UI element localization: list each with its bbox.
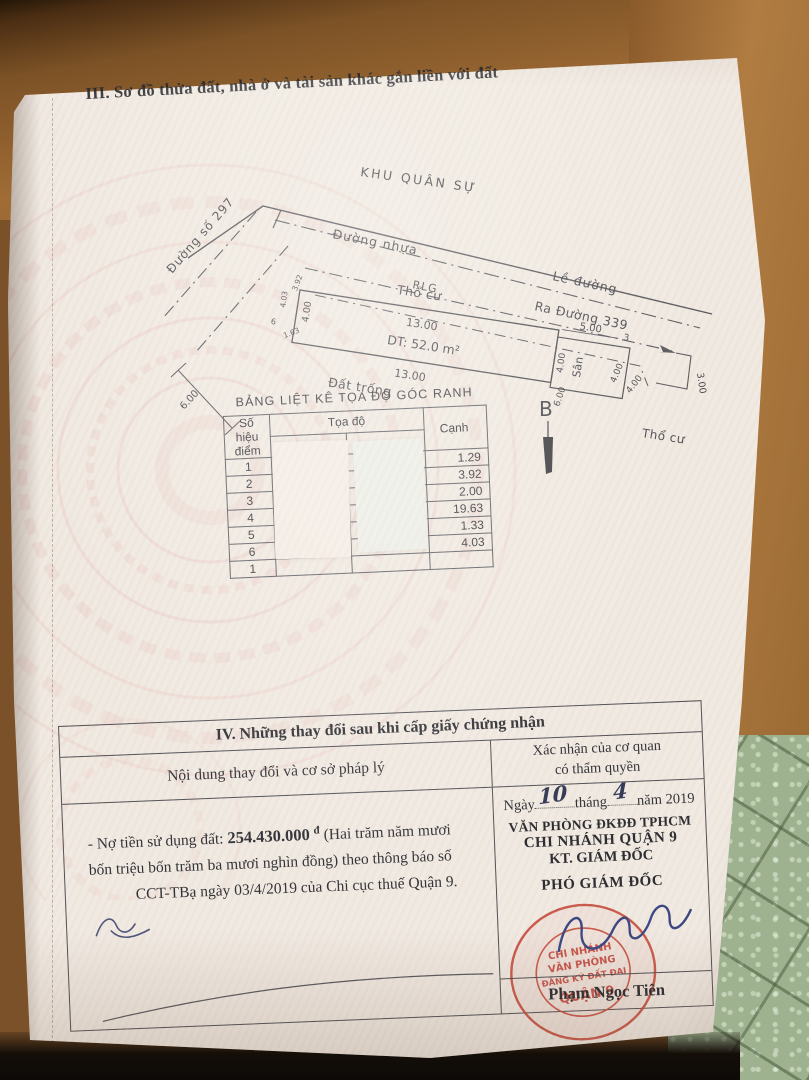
director-signature (549, 887, 702, 971)
diagram-label-yard: Sân (570, 356, 586, 378)
dim-yard-right-400: 4.00 (609, 362, 626, 385)
dim-bottom-1300: 13.00 (393, 366, 426, 384)
main-plot-rect (292, 290, 559, 382)
handwritten-month: 4 (613, 777, 628, 804)
authority-confirmation-cell: Ngày10tháng4năm 2019 VĂN PHÒNG ĐKĐĐ TPHC… (493, 779, 713, 1013)
changes-content-cell: - Nợ tiền sử dụng đất: 254.430.000 đ (Ha… (62, 788, 502, 1031)
blank-gap (90, 899, 136, 901)
diagram-label-residential-right: Thổ cư (640, 426, 687, 447)
diagram-label-asphalt-road: Đường nhựa (331, 226, 419, 257)
dim-left-400: 4.00 (300, 300, 314, 323)
section4-table: IV. Những thay đổi sau khi cấp giấy chứn… (58, 700, 714, 1032)
dim-yard-left-400: 4.00 (555, 352, 568, 374)
dim-yard-bottom-600: 6.00 (553, 386, 569, 408)
diagram-label-military-zone: KHU QUÂN SỰ (360, 164, 479, 195)
diagram-label-road-shoulder: Lề đường (551, 268, 619, 296)
dim-yard-right2-400: 4.00 (625, 373, 646, 395)
col-header-authority: Xác nhận của cơ quan có thẩm quyền (491, 732, 704, 786)
closing-stroke-line (81, 962, 498, 1027)
handwritten-day: 10 (539, 780, 568, 809)
diagram-label-road-297: Đường số 297 (164, 195, 237, 276)
debt-amount: 254.430.000 (227, 825, 310, 847)
col-header-edge: Cạnh (423, 405, 488, 451)
small-dim-b: 3.92 (290, 273, 304, 292)
month-dotted-blank: 4 (607, 791, 638, 806)
plot-area-value: DT: 52.0 m² (386, 332, 461, 358)
day-dotted-blank: 10 (534, 793, 575, 809)
small-dim-c: 1.63 (282, 326, 301, 341)
coordinate-table-block: BẢNG LIỆT KÊ TỌA ĐỘ GÓC RANH Số hiệu điể… (222, 384, 494, 578)
small-dim-a: 4.03 (278, 290, 289, 308)
small-dim-d: 6 (270, 317, 276, 327)
point-3-label: 3 (623, 333, 630, 344)
col-header-point-2: điểm (234, 443, 261, 458)
currency-symbol: đ (313, 824, 320, 836)
dim-top-1300: 13.00 (405, 316, 438, 334)
road339-line (305, 268, 672, 351)
section4-body-row: - Nợ tiền sử dụng đất: 254.430.000 đ (Ha… (62, 779, 713, 1031)
date-line: Ngày10tháng4năm 2019 (493, 788, 705, 815)
col-header-point-1: Số hiệu (235, 416, 258, 445)
road-tick (273, 210, 281, 228)
dim-300: 3.00 (694, 372, 708, 394)
clerk-initial-signature (92, 908, 151, 940)
dim-yard-top-500: 5.00 (579, 321, 603, 335)
blanked-coordinates-patch (353, 438, 429, 553)
land-use-fee-note: - Nợ tiền sử dụng đất: 254.430.000 đ (Ha… (62, 788, 497, 942)
boundary-line (188, 206, 712, 314)
north-indicator-letter: B (539, 397, 553, 421)
road339-arrowhead (658, 345, 676, 353)
road297-line-2 (196, 246, 288, 352)
north-arrow-blade (543, 437, 553, 474)
road339-hook (656, 353, 691, 389)
blanked-coordinates-patch (272, 440, 351, 559)
signer-name: Phạm Ngọc Tiên (500, 970, 712, 1013)
page-fold-crease (52, 98, 53, 1043)
